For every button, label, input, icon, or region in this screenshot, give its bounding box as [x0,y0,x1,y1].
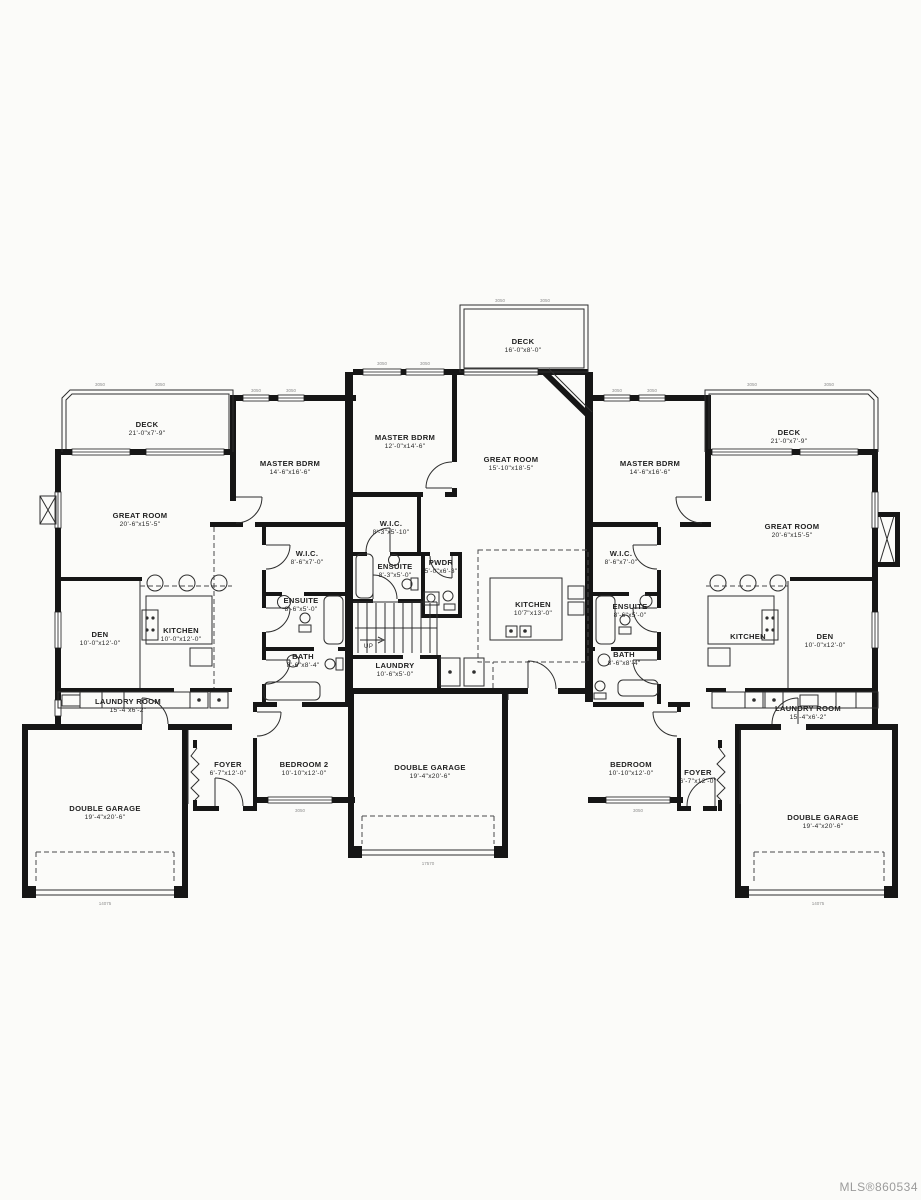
room-label-left-bath: BATH 8'-6"x8'-4" [287,652,320,671]
window-size-code: 3050 [747,382,757,387]
window-size-code: 3050 [612,388,622,393]
floorplan-linework [0,0,921,1200]
window-size-code: 3050 [540,298,550,303]
room-label-mid-double-garage: DOUBLE GARAGE 19'-4"x20'-6" [394,763,465,782]
room-label-left-kitchen: KITCHEN 10'-0"x12'-0" [161,626,202,645]
room-label-left-great-room: GREAT ROOM 20'-6"x15'-5" [113,511,168,530]
room-label-right-ensuite: ENSUITE 8'-6"x5'-0" [612,602,647,621]
room-label-left-ensuite: ENSUITE 8'-6"x5'-0" [283,596,318,615]
room-label-right-great-room: GREAT ROOM 20'-6"x15'-5" [765,522,820,541]
window-size-code: 3050 [377,361,387,366]
room-label-mid-ensuite: ENSUITE 8'-3"x5'-0" [377,562,412,581]
room-label-right-den: DEN 10'-0"x12'-0" [805,632,846,651]
room-label-right-master-bdrm: MASTER BDRM 14'-6"x16'-6" [620,459,680,478]
window-size-code: 3050 [420,361,430,366]
room-label-mid-wic: W.I.C. 8'-3"x5'-10" [373,519,410,538]
walls [22,369,900,898]
room-label-mid-master-bdrm: MASTER BDRM 12'-0"x14'-6" [375,433,435,452]
window-size-code: 3050 [95,382,105,387]
scanned-floor-plan-page: DECK 21'-0"x7'-9" GREAT ROOM 20'-6"x15'-… [0,0,921,1200]
room-label-right-laundry-room: LAUNDRY ROOM 15'-4"x6'-2" [775,704,841,723]
garage-plate-dimension: 14075 [99,901,112,906]
room-label-right-kitchen: KITCHEN [730,632,766,642]
room-label-mid-kitchen: KITCHEN 10'7"x13'-0" [514,600,552,619]
room-label-right-double-garage: DOUBLE GARAGE 19'-4"x20'-6" [787,813,858,832]
thin-linework [36,305,894,895]
room-label-right-bedroom: BEDROOM 10'-10"x12'-0" [609,760,654,779]
window-size-code: 3050 [155,382,165,387]
garage-plate-dimension: 17570 [422,861,435,866]
room-label-left-den: DEN 10'-0"x12'-0" [80,630,121,649]
room-label-left-deck: DECK 21'-0"x7'-9" [129,420,166,439]
room-label-left-laundry-room: LAUNDRY ROOM 15'-4"x6'-2" [95,697,161,716]
window-size-code: 3050 [633,808,643,813]
garage-plate-dimension: 14075 [812,901,825,906]
room-label-right-deck: DECK 21'-0"x7'-9" [771,428,808,447]
diagonal-fireplace-wall [545,373,589,416]
mls-number-watermark: MLS®860534 [839,1180,918,1194]
window-size-code: 3050 [824,382,834,387]
room-label-mid-great-room: GREAT ROOM 15'-10"x18'-5" [484,455,539,474]
window-size-code: 3050 [647,388,657,393]
room-label-mid-pwdr: PWDR 5'-0"x6'-3" [425,558,458,577]
room-label-left-double-garage: DOUBLE GARAGE 19'-4"x20'-6" [69,804,140,823]
room-label-mid-laundry: LAUNDRY 10'-6"x5'-0" [376,661,415,680]
window-size-code: 3050 [286,388,296,393]
window-size-code: 3050 [295,808,305,813]
room-label-left-master-bdrm: MASTER BDRM 14'-6"x16'-6" [260,459,320,478]
room-label-left-wic: W.I.C. 8'-6"x7'-0" [291,549,324,568]
room-label-mid-deck: DECK 16'-0"x8'-0" [505,337,542,356]
window-size-code: 3050 [495,298,505,303]
room-label-left-bedroom-2: BEDROOM 2 10'-10"x12'-0" [280,760,329,779]
room-label-left-foyer: FOYER 6'-7"x12'-0" [210,760,247,779]
room-label-right-wic: W.I.C. 8'-6"x7'-0" [605,549,638,568]
stairs-up-label: UP [364,644,373,650]
window-size-code: 3050 [251,388,261,393]
room-label-right-foyer: FOYER 6'-7"x12'-0" [680,768,717,787]
room-label-right-bath: BATH 8'-6"x8'-4" [608,650,641,669]
